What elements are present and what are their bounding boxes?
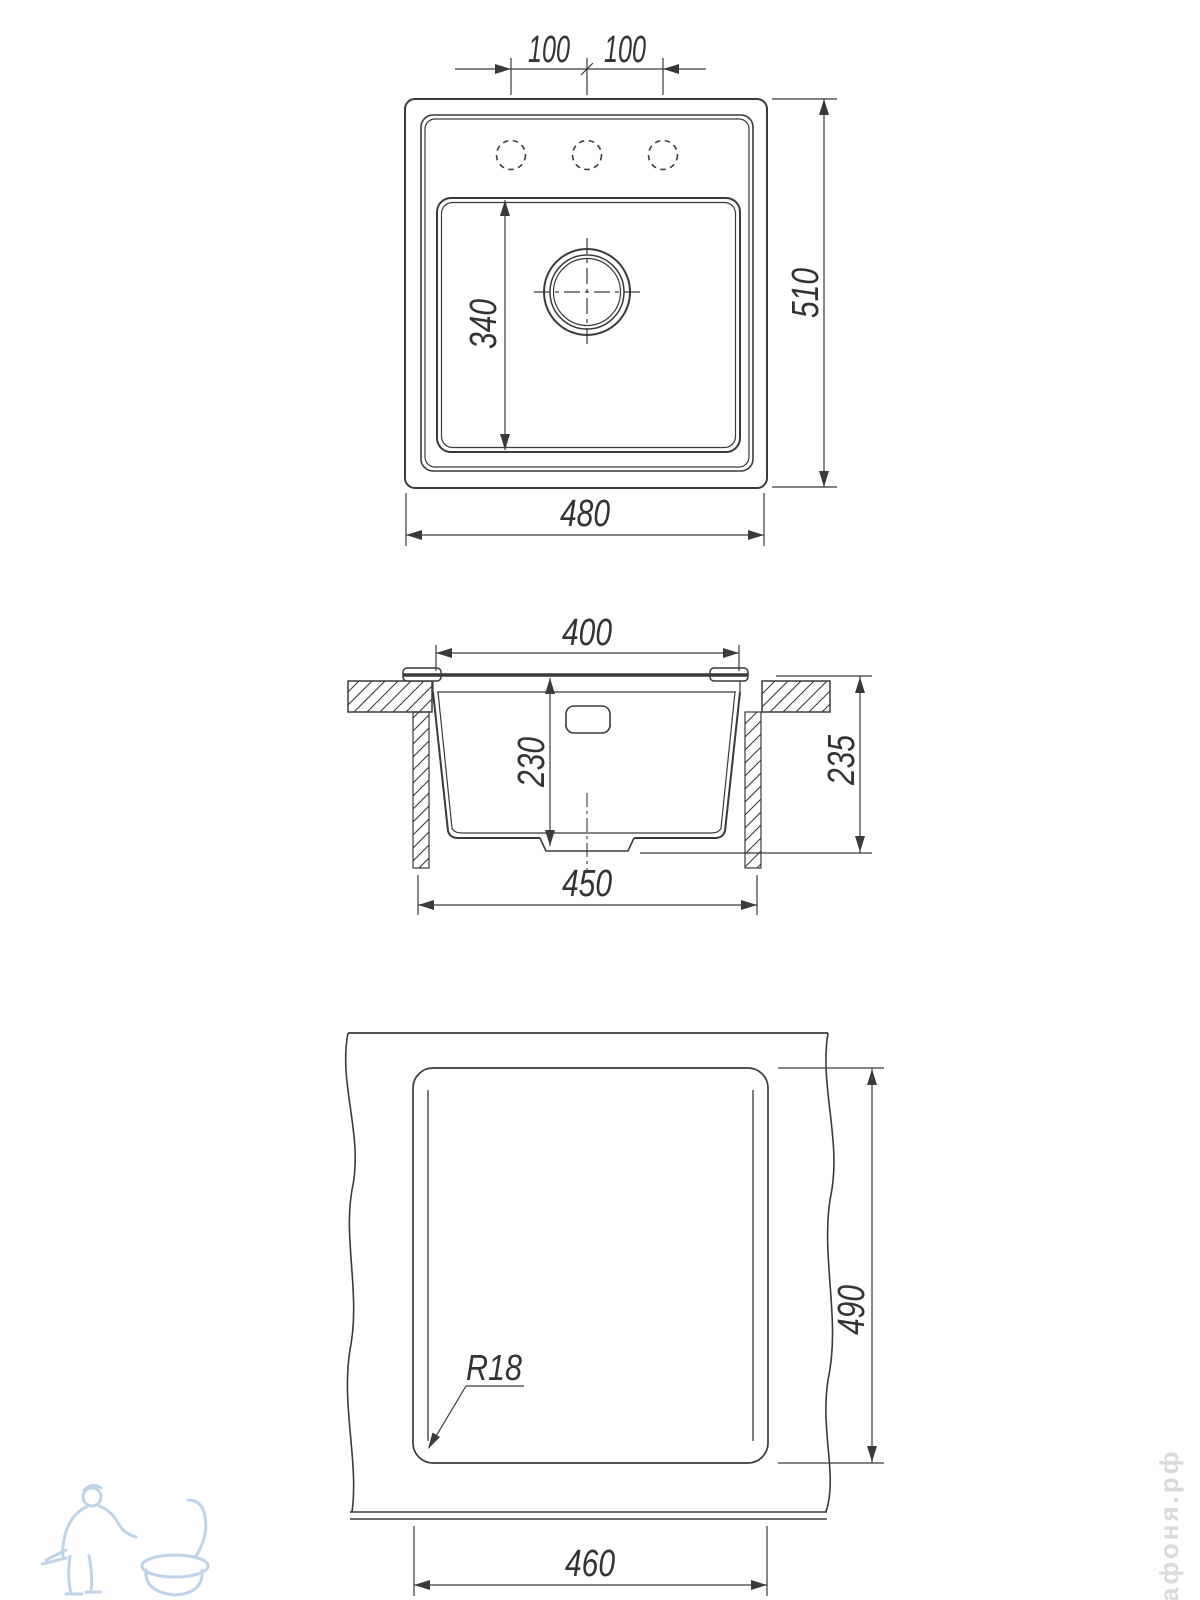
sink-technical-drawing: 100 100 340 510 480 [0, 0, 1200, 1600]
section-view: 400 230 235 450 [348, 612, 872, 915]
cabinet-wall-right [745, 712, 761, 868]
drain-centerlines [534, 238, 640, 346]
dim-100-left-label: 100 [528, 29, 570, 71]
dim-510-label: 510 [785, 268, 827, 318]
drain [534, 238, 640, 346]
cutout-outline [413, 1068, 768, 1463]
bowl-section [433, 692, 740, 872]
drawing-canvas: 100 100 340 510 480 [0, 0, 1200, 1600]
dim-r18-label: R18 [466, 1347, 522, 1388]
plumber-watermark-logo [42, 1485, 208, 1595]
faucet-hole-center [573, 141, 602, 170]
faucet-hole-right [649, 141, 678, 170]
cutout-view: 490 R18 460 [346, 1033, 884, 1596]
counter-block-right [762, 681, 830, 712]
dim-100-right-label: 100 [604, 29, 646, 71]
watermark-site-text: афоня.рф [1154, 1449, 1184, 1600]
counter-block-left [348, 681, 432, 712]
dimension-hole-spacing [455, 58, 706, 95]
counter-bottom-edge [350, 1512, 827, 1519]
cabinet-wall-left [413, 712, 429, 868]
faucet-hole-left [497, 141, 526, 170]
dim-235-label: 235 [821, 734, 863, 785]
counter-break-left [346, 1033, 356, 1512]
dim-400-label: 400 [562, 612, 612, 654]
dim-460-label: 460 [565, 1543, 615, 1585]
cutout-inner-edges [428, 1090, 753, 1441]
faucet-holes [497, 141, 678, 170]
sink-outer-edge [405, 99, 767, 488]
counter-break-right [826, 1033, 834, 1512]
top-view: 100 100 340 510 480 [405, 29, 837, 546]
corner-radius-callout [428, 1386, 524, 1449]
dim-340-label: 340 [463, 299, 505, 349]
overflow-hole [566, 706, 610, 733]
dim-230-label: 230 [511, 737, 553, 788]
dim-490-label: 490 [831, 1285, 873, 1335]
dim-450-label: 450 [562, 863, 612, 905]
dim-480-label: 480 [560, 493, 610, 535]
